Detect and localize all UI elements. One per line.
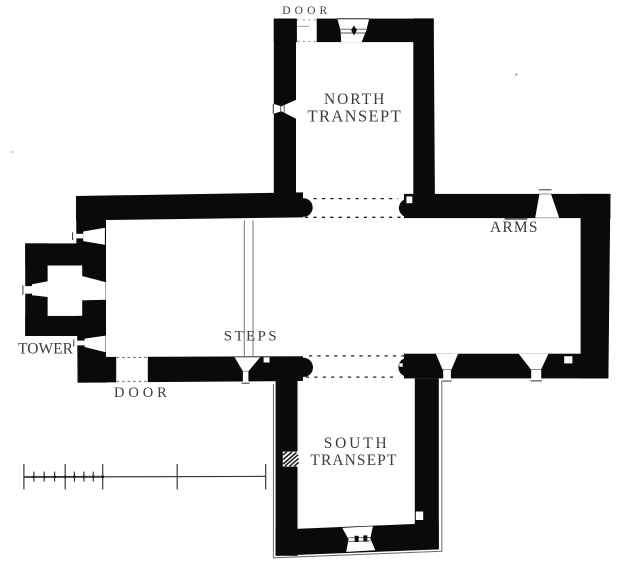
svg-text:TRANSEPT: TRANSEPT (308, 107, 401, 126)
svg-text:TOWER: TOWER (18, 341, 74, 358)
svg-text:ARMS: ARMS (490, 219, 538, 236)
svg-text:TRANSEPT: TRANSEPT (310, 452, 396, 469)
svg-text:NORTH: NORTH (324, 91, 384, 108)
svg-text:STEPS: STEPS (224, 329, 277, 345)
